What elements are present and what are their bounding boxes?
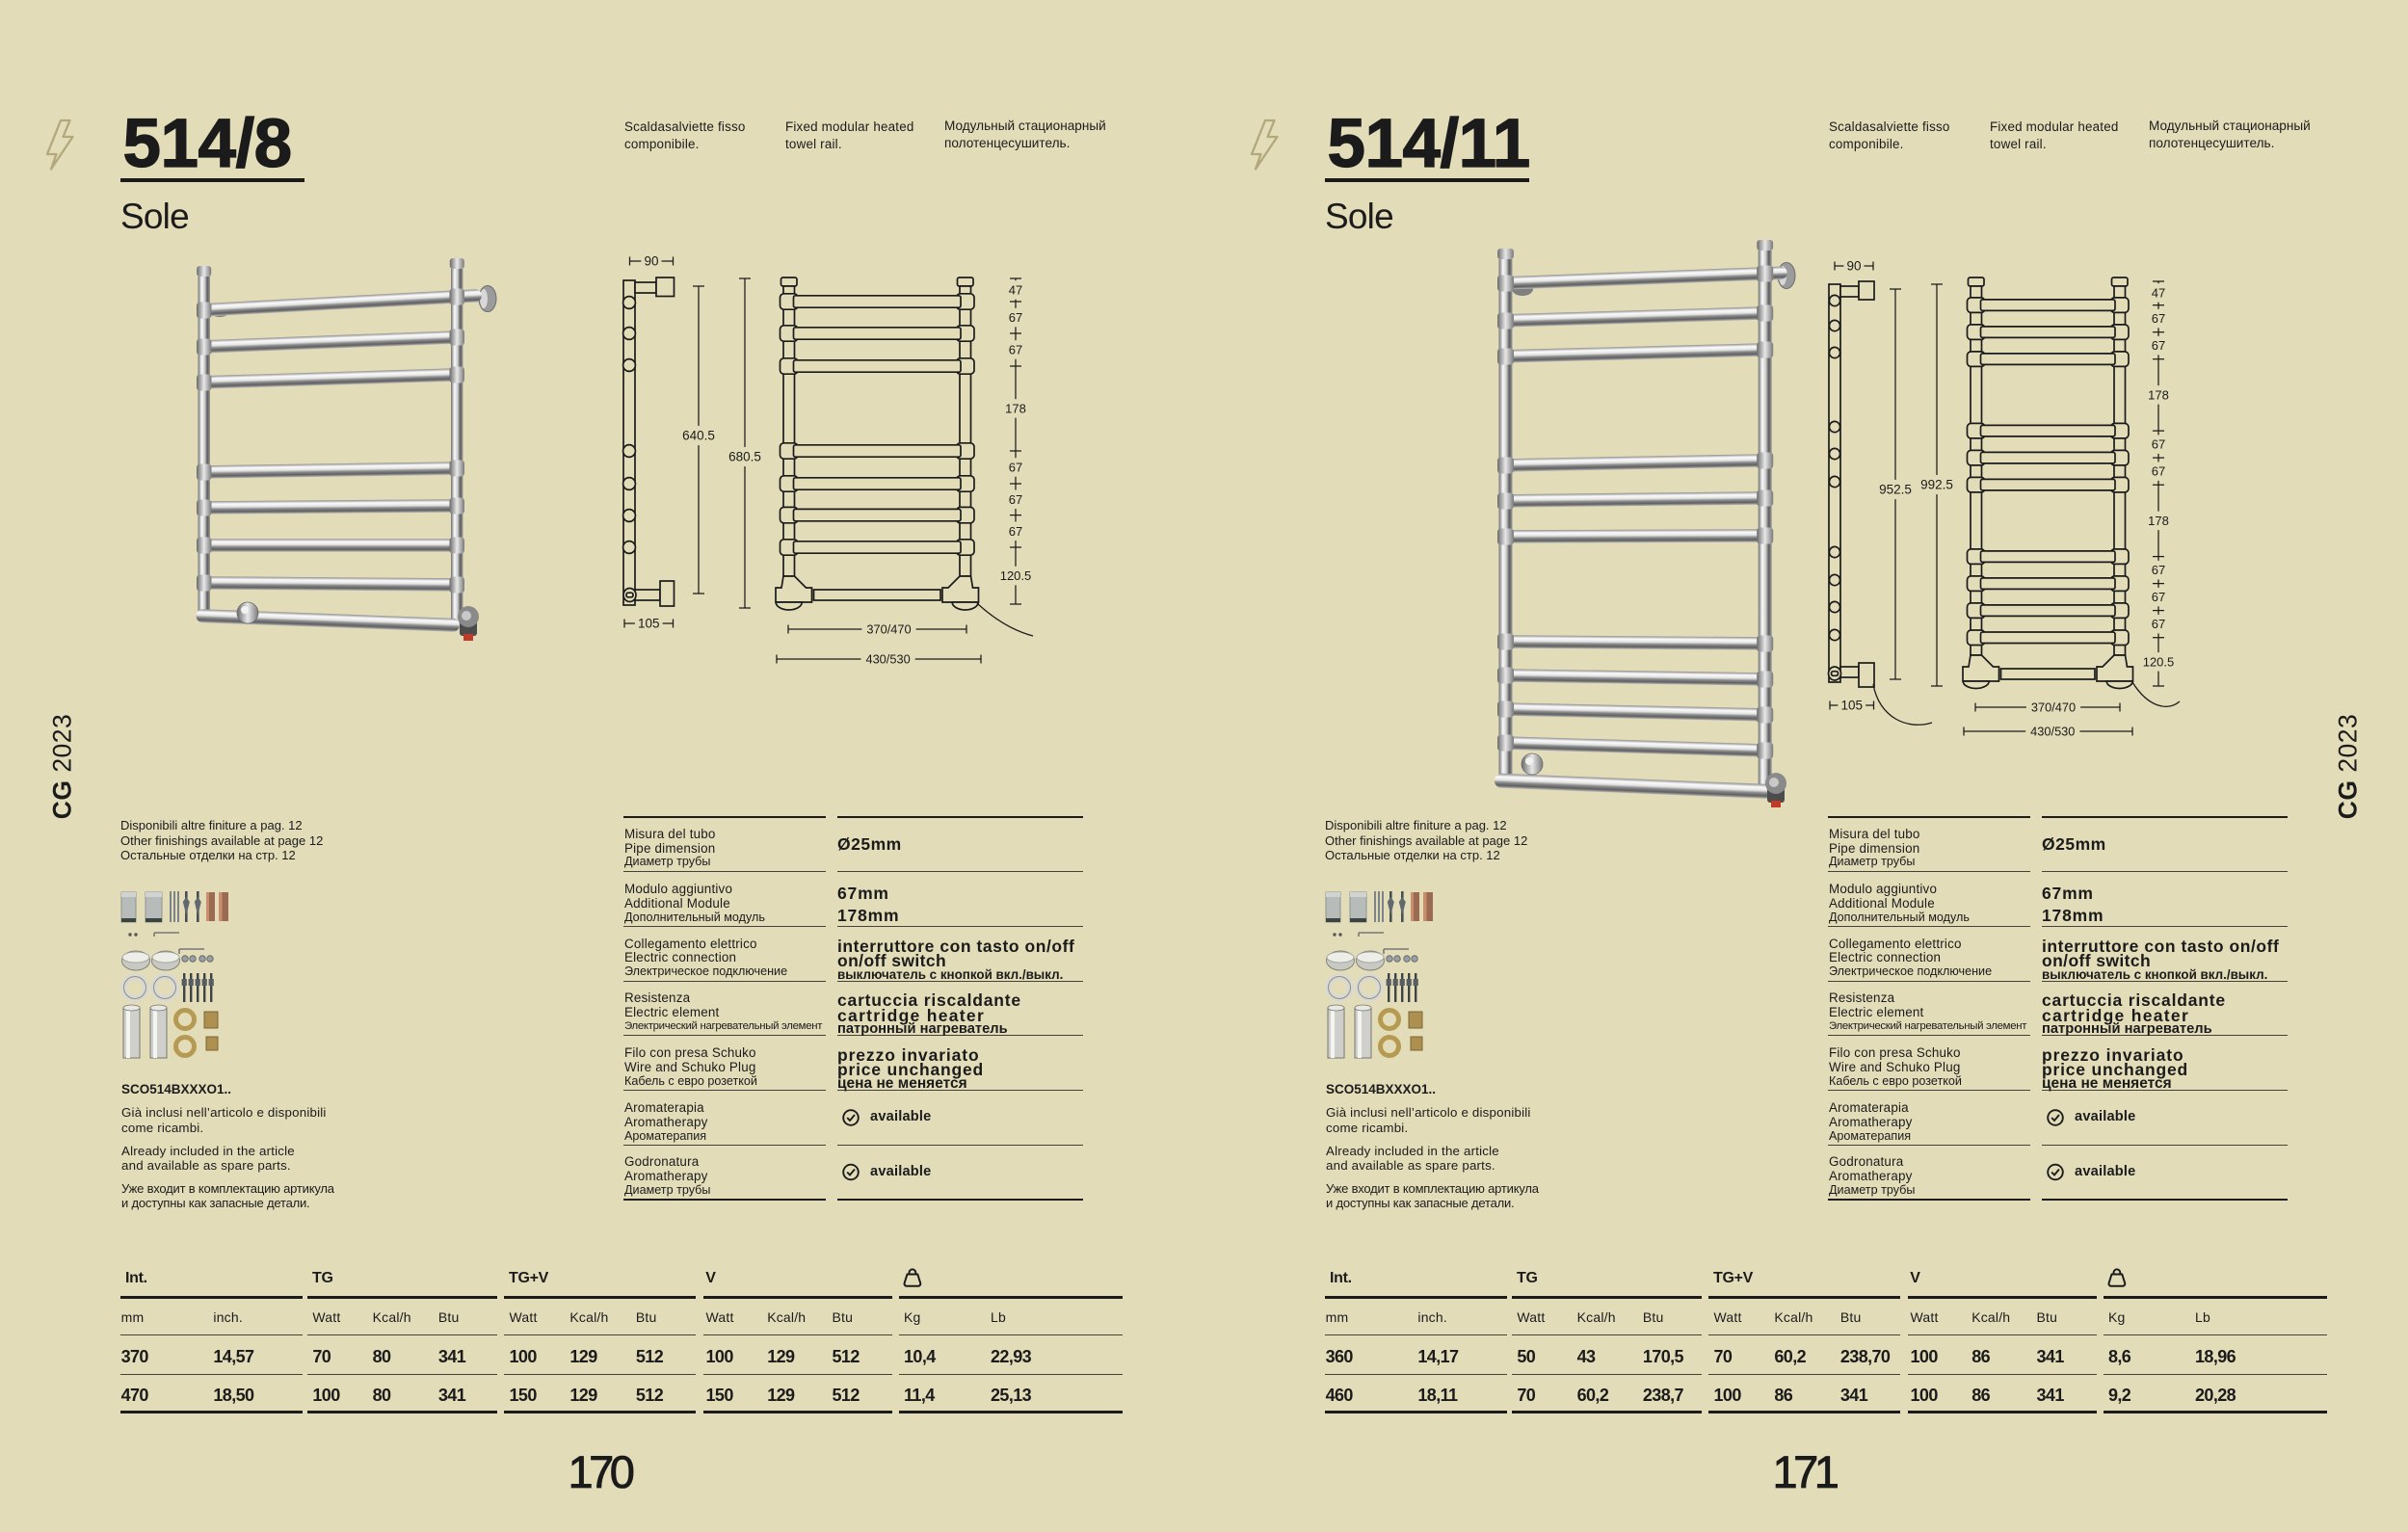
svg-text:952.5: 952.5 — [1879, 483, 1912, 497]
svg-text:992.5: 992.5 — [1920, 478, 1953, 492]
svg-text:90: 90 — [1846, 259, 1861, 274]
svg-text:640.5: 640.5 — [682, 429, 715, 443]
svg-text:67: 67 — [2152, 311, 2165, 326]
svg-text:370/470: 370/470 — [866, 621, 911, 636]
svg-text:67: 67 — [2152, 617, 2165, 631]
svg-text:680.5: 680.5 — [728, 450, 761, 464]
svg-text:105: 105 — [638, 617, 660, 631]
svg-text:67: 67 — [2152, 590, 2165, 604]
svg-text:105: 105 — [1840, 699, 1863, 713]
svg-text:178: 178 — [1005, 402, 1026, 416]
svg-text:67: 67 — [2152, 563, 2165, 577]
svg-text:67: 67 — [1009, 492, 1022, 507]
svg-text:67: 67 — [1009, 343, 1022, 357]
svg-text:67: 67 — [2152, 338, 2165, 353]
svg-text:178: 178 — [2148, 387, 2169, 402]
svg-text:430/530: 430/530 — [2030, 724, 2075, 738]
svg-text:430/530: 430/530 — [865, 651, 910, 666]
svg-text:178: 178 — [2148, 514, 2169, 528]
svg-text:120.5: 120.5 — [2143, 654, 2175, 669]
svg-text:67: 67 — [1009, 310, 1022, 325]
svg-text:67: 67 — [1009, 461, 1022, 475]
svg-text:67: 67 — [1009, 524, 1022, 539]
svg-text:120.5: 120.5 — [1000, 568, 1032, 583]
svg-text:47: 47 — [2152, 286, 2165, 301]
svg-text:67: 67 — [2152, 437, 2165, 452]
svg-text:90: 90 — [644, 254, 658, 269]
svg-text:47: 47 — [1009, 283, 1022, 298]
svg-text:67: 67 — [2152, 464, 2165, 479]
svg-text:370/470: 370/470 — [2031, 700, 2076, 714]
